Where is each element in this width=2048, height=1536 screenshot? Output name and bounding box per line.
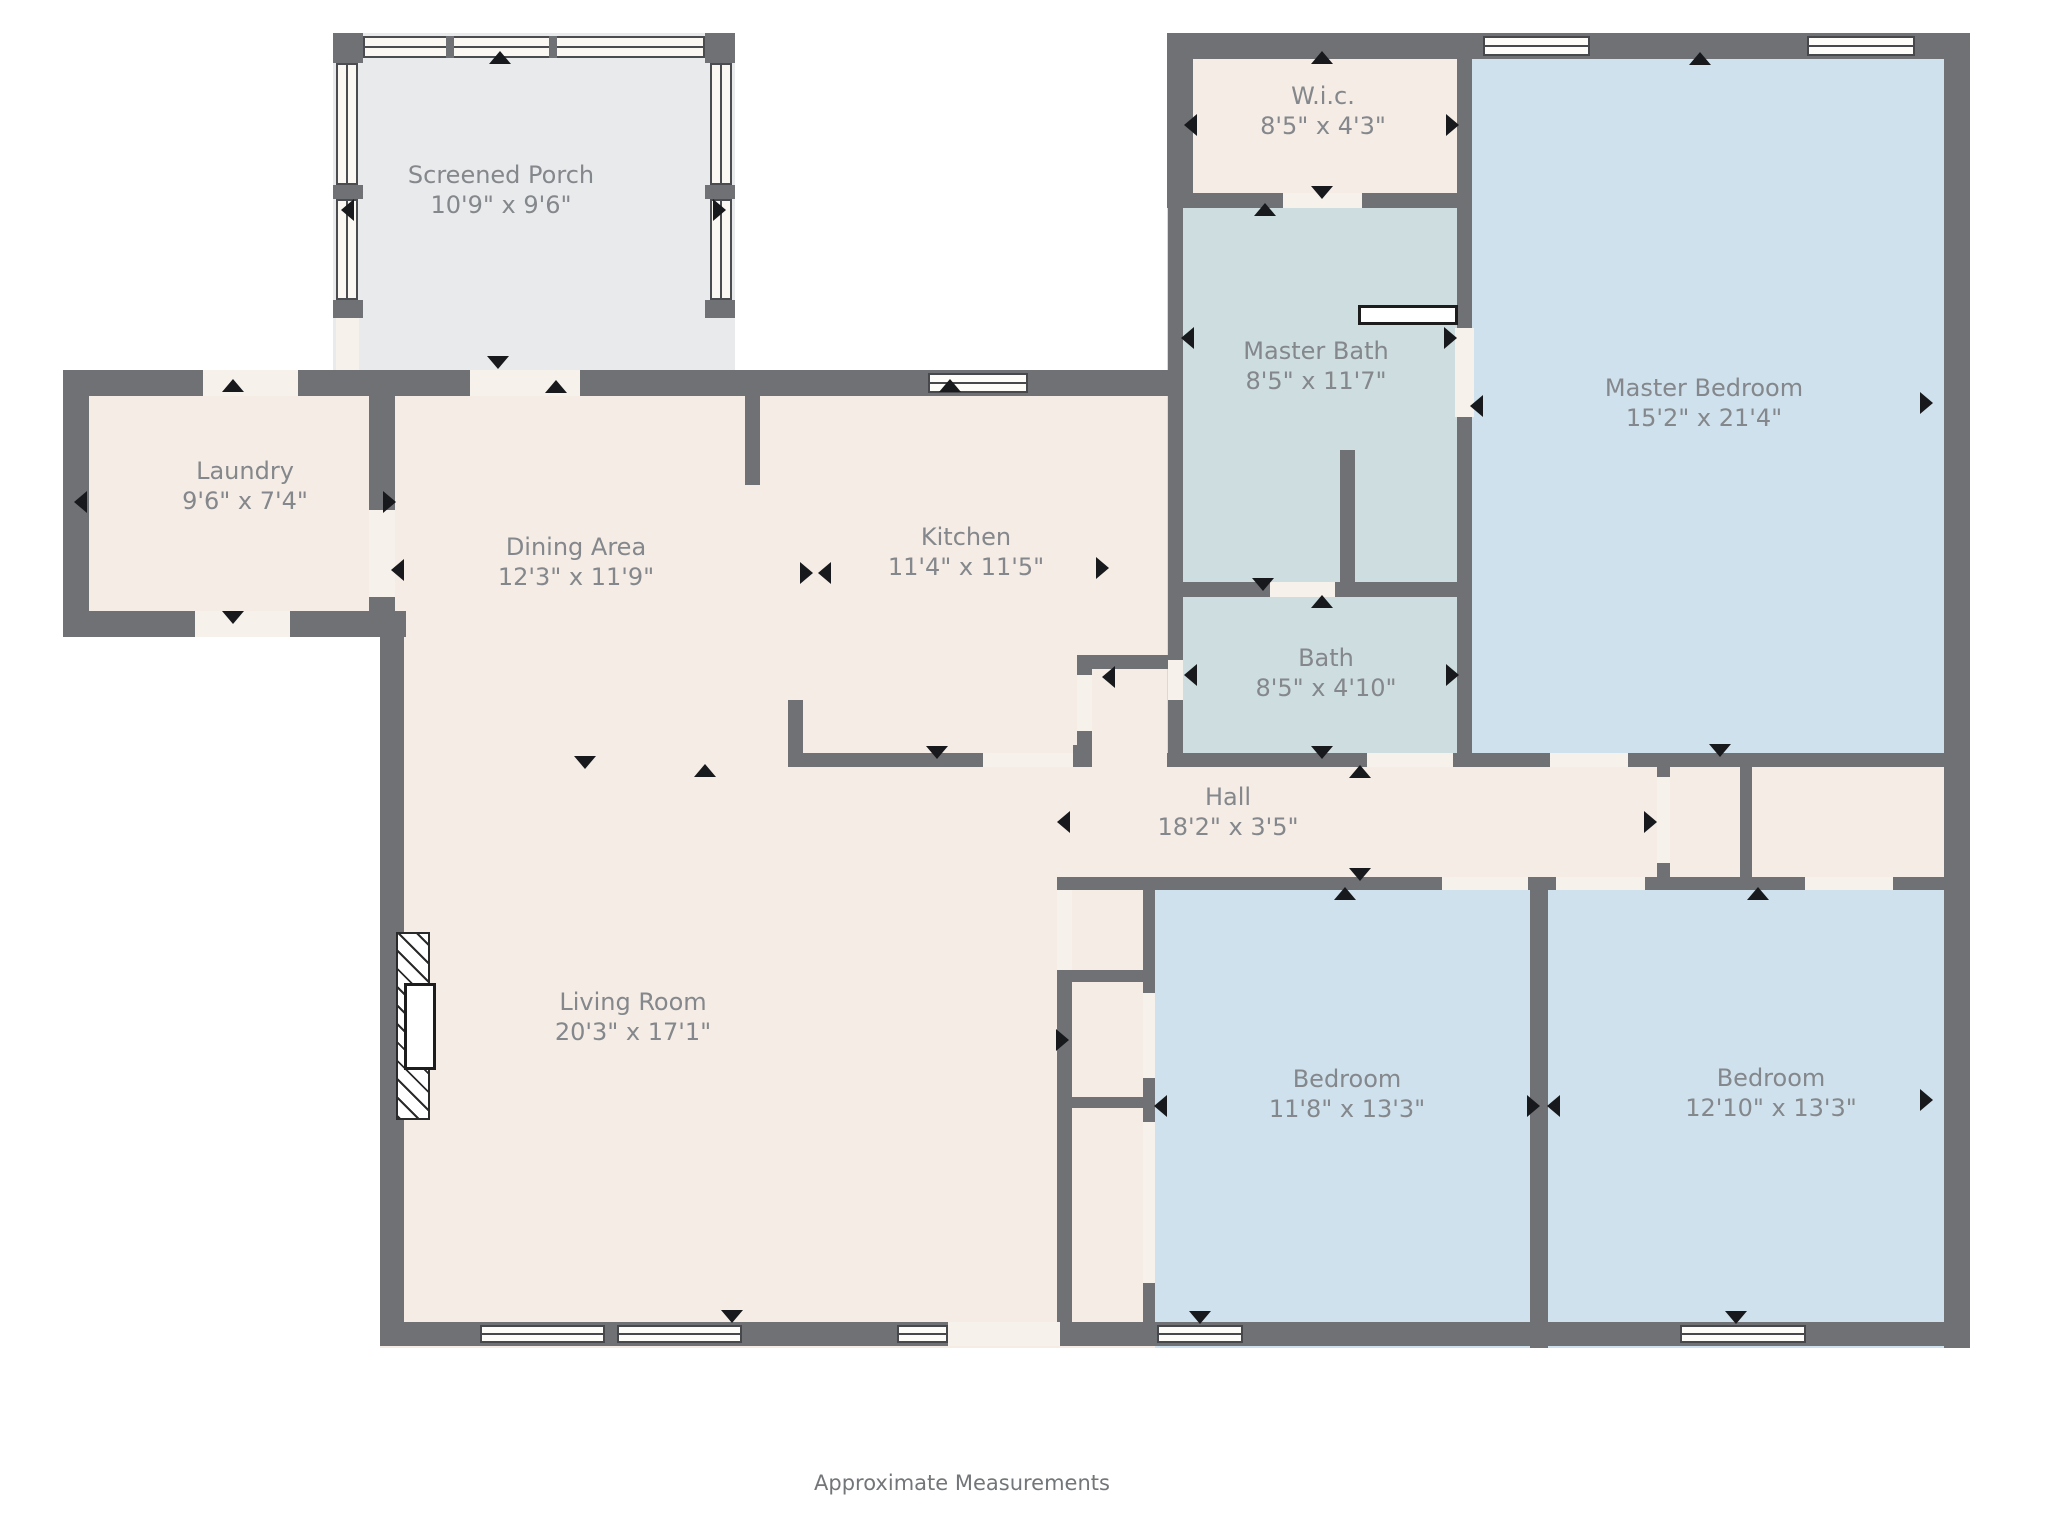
door-swing-arrow-icon xyxy=(222,379,244,392)
door-swing-arrow-icon xyxy=(1181,327,1194,349)
door-swing-arrow-icon xyxy=(1154,1095,1167,1117)
room-name: W.i.c. xyxy=(1260,81,1386,111)
door-swing-arrow-icon xyxy=(222,611,244,624)
door-opening xyxy=(1143,993,1155,1078)
room-dimensions: 8'5" x 4'10" xyxy=(1255,673,1396,703)
room-dimensions: 9'6" x 7'4" xyxy=(182,486,308,516)
door-swing-arrow-icon xyxy=(383,491,396,513)
wall-segment xyxy=(1335,582,1457,597)
door-swing-arrow-icon xyxy=(1102,666,1115,688)
door-swing-arrow-icon xyxy=(1349,868,1371,881)
door-swing-arrow-icon xyxy=(341,199,354,221)
door-opening xyxy=(1550,753,1628,767)
window-muntin xyxy=(1809,45,1913,47)
door-opening xyxy=(1077,675,1092,731)
porch-screen-panel xyxy=(363,36,705,58)
porch-screen-panel xyxy=(710,63,732,185)
door-swing-arrow-icon xyxy=(1747,887,1769,900)
floor-plan: Approximate Measurements Screened Porch1… xyxy=(0,0,2048,1536)
fireplace-firebox xyxy=(404,983,436,1070)
door-swing-arrow-icon xyxy=(1644,811,1657,833)
room-label-living-room: Living Room20'3" x 17'1" xyxy=(555,987,711,1047)
room-dimensions: 20'3" x 17'1" xyxy=(555,1017,711,1047)
door-opening xyxy=(1556,877,1645,890)
porch-post xyxy=(446,36,454,58)
door-swing-arrow-icon xyxy=(800,562,813,584)
door-swing-arrow-icon xyxy=(721,1310,743,1323)
wall-segment xyxy=(745,396,760,485)
door-swing-arrow-icon xyxy=(926,746,948,759)
window xyxy=(1483,36,1590,56)
door-swing-arrow-icon xyxy=(391,559,404,581)
door-swing-arrow-icon xyxy=(1444,327,1457,349)
door-opening xyxy=(1367,753,1453,767)
room-name: Bedroom xyxy=(1269,1064,1425,1094)
door-swing-arrow-icon xyxy=(1527,1095,1540,1117)
wall-segment xyxy=(1657,863,1670,877)
wall-segment xyxy=(1077,655,1092,675)
room-label-hall: Hall18'2" x 3'5" xyxy=(1157,782,1298,842)
door-swing-arrow-icon xyxy=(1920,1089,1933,1111)
window-muntin xyxy=(1159,1333,1241,1335)
wall-segment xyxy=(1457,59,1472,193)
room-name: Hall xyxy=(1157,782,1298,812)
door-opening xyxy=(1657,777,1670,863)
wall-segment xyxy=(1340,450,1355,582)
door-swing-arrow-icon xyxy=(1189,1311,1211,1324)
door-swing-arrow-icon xyxy=(574,756,596,769)
room-name: Living Room xyxy=(555,987,711,1017)
window-muntin xyxy=(1485,45,1588,47)
wall-segment xyxy=(1167,753,1367,767)
door-swing-arrow-icon xyxy=(487,356,509,369)
room-label-laundry: Laundry9'6" x 7'4" xyxy=(182,456,308,516)
window xyxy=(1157,1325,1243,1343)
room-label-master-bedroom: Master Bedroom15'2" x 21'4" xyxy=(1605,373,1803,433)
wall-segment xyxy=(1645,877,1805,890)
wall-segment xyxy=(1453,753,1472,767)
door-opening xyxy=(1143,1122,1155,1283)
window xyxy=(897,1325,948,1343)
door-swing-arrow-icon xyxy=(1311,746,1333,759)
door-opening xyxy=(203,370,298,396)
room-dimensions: 12'3" x 11'9" xyxy=(498,562,654,592)
window-muntin xyxy=(619,1333,740,1335)
footer-note: Approximate Measurements xyxy=(814,1471,1110,1495)
wall-segment xyxy=(369,597,395,611)
wall-segment xyxy=(1057,1097,1155,1108)
door-opening xyxy=(1057,890,1072,970)
door-swing-arrow-icon xyxy=(1470,395,1483,417)
door-swing-arrow-icon xyxy=(1311,595,1333,608)
room-name: Kitchen xyxy=(888,522,1044,552)
room-label-bedroom-2: Bedroom12'10" x 13'3" xyxy=(1685,1063,1857,1123)
door-swing-arrow-icon xyxy=(1184,664,1197,686)
room-label-bedroom-1: Bedroom11'8" x 13'3" xyxy=(1269,1064,1425,1124)
room-name: Screened Porch xyxy=(408,160,594,190)
room-dimensions: 15'2" x 21'4" xyxy=(1605,403,1803,433)
door-swing-arrow-icon xyxy=(1254,203,1276,216)
window-muntin xyxy=(482,1333,603,1335)
porch-post xyxy=(705,300,735,318)
wall-segment xyxy=(1057,970,1072,1323)
door-swing-arrow-icon xyxy=(1547,1095,1560,1117)
window-muntin xyxy=(720,65,722,183)
porch-screen-panel xyxy=(336,63,358,185)
wall-segment xyxy=(1168,208,1183,580)
wall-segment xyxy=(1893,877,1944,890)
window-muntin xyxy=(899,1333,946,1335)
door-swing-arrow-icon xyxy=(1096,557,1109,579)
door-swing-arrow-icon xyxy=(1057,811,1070,833)
room-dimensions: 12'10" x 13'3" xyxy=(1685,1093,1857,1123)
window xyxy=(480,1325,605,1343)
door-swing-arrow-icon xyxy=(1349,765,1371,778)
porch-post xyxy=(705,185,735,199)
porch-post xyxy=(333,33,363,63)
wall-segment xyxy=(1077,731,1092,767)
porch-post xyxy=(705,33,735,63)
room-dimensions: 8'5" x 11'7" xyxy=(1243,366,1388,396)
door-swing-arrow-icon xyxy=(1725,1311,1747,1324)
window xyxy=(617,1325,742,1343)
door-swing-arrow-icon xyxy=(545,380,567,393)
room-name: Bath xyxy=(1255,643,1396,673)
door-swing-arrow-icon xyxy=(1184,114,1197,136)
wall-segment xyxy=(1657,767,1670,777)
door-swing-arrow-icon xyxy=(1056,1029,1069,1051)
window-muntin xyxy=(1682,1333,1804,1335)
room-name: Bedroom xyxy=(1685,1063,1857,1093)
door-opening xyxy=(1805,877,1893,890)
bathroom-counter xyxy=(1358,305,1458,325)
room-label-dining-area: Dining Area12'3" x 11'9" xyxy=(498,532,654,592)
wall-segment xyxy=(1457,193,1472,328)
window-muntin xyxy=(346,65,348,183)
room-name: Laundry xyxy=(182,456,308,486)
door-opening xyxy=(369,510,395,597)
door-swing-arrow-icon xyxy=(1252,578,1274,591)
wall-segment xyxy=(1457,580,1472,767)
room-name: Dining Area xyxy=(498,532,654,562)
door-opening xyxy=(983,753,1073,767)
room-label-screened-porch: Screened Porch10'9" x 9'6" xyxy=(408,160,594,220)
door-swing-arrow-icon xyxy=(1709,744,1731,757)
door-swing-arrow-icon xyxy=(1446,114,1459,136)
wall-segment xyxy=(1472,753,1550,767)
wall-segment xyxy=(1143,1283,1155,1323)
door-swing-arrow-icon xyxy=(1311,186,1333,199)
room-dimensions: 18'2" x 3'5" xyxy=(1157,812,1298,842)
wall-segment xyxy=(1457,417,1472,580)
window-muntin xyxy=(365,46,703,48)
porch-post xyxy=(333,300,363,318)
window xyxy=(1807,36,1915,56)
room-label-wic: W.i.c.8'5" x 4'3" xyxy=(1260,81,1386,141)
wall-segment xyxy=(333,370,1183,396)
wall-segment xyxy=(1362,193,1472,208)
wall-segment xyxy=(1628,753,1944,767)
door-swing-arrow-icon xyxy=(74,491,87,513)
door-opening xyxy=(1168,660,1183,700)
room-dimensions: 11'4" x 11'5" xyxy=(888,552,1044,582)
room-dimensions: 11'8" x 13'3" xyxy=(1269,1094,1425,1124)
wall-segment xyxy=(788,753,983,767)
door-swing-arrow-icon xyxy=(694,764,716,777)
door-swing-arrow-icon xyxy=(1334,887,1356,900)
door-swing-arrow-icon xyxy=(713,199,726,221)
room-dimensions: 8'5" x 4'3" xyxy=(1260,111,1386,141)
door-swing-arrow-icon xyxy=(1311,51,1333,64)
room-label-master-bath: Master Bath8'5" x 11'7" xyxy=(1243,336,1388,396)
wall-segment xyxy=(1944,33,1970,1348)
door-opening xyxy=(336,318,359,370)
window xyxy=(1680,1325,1806,1343)
door-swing-arrow-icon xyxy=(1446,664,1459,686)
wall-segment xyxy=(1530,890,1548,1348)
wall-segment xyxy=(1057,970,1155,982)
room-label-kitchen: Kitchen11'4" x 11'5" xyxy=(888,522,1044,582)
room-dimensions: 10'9" x 9'6" xyxy=(408,190,594,220)
door-swing-arrow-icon xyxy=(939,379,961,392)
wall-segment xyxy=(1168,580,1183,660)
porch-post xyxy=(549,36,557,58)
door-swing-arrow-icon xyxy=(1689,52,1711,65)
door-swing-arrow-icon xyxy=(1920,392,1933,414)
door-swing-arrow-icon xyxy=(489,51,511,64)
room-name: Master Bedroom xyxy=(1605,373,1803,403)
porch-post xyxy=(333,185,363,199)
wall-segment xyxy=(1057,877,1442,890)
room-label-bath: Bath8'5" x 4'10" xyxy=(1255,643,1396,703)
wall-segment xyxy=(1528,877,1556,890)
door-opening xyxy=(1442,877,1528,890)
door-opening xyxy=(948,1322,1060,1346)
door-swing-arrow-icon xyxy=(818,562,831,584)
room-name: Master Bath xyxy=(1243,336,1388,366)
wall-segment xyxy=(1740,753,1752,890)
